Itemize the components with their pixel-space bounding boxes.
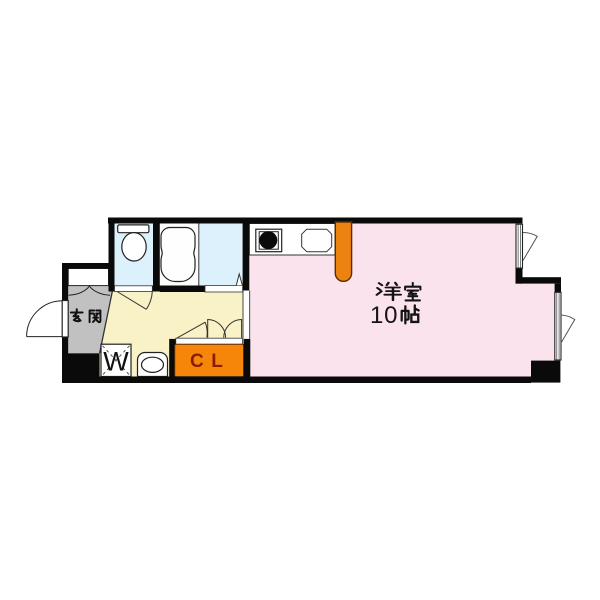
svg-text:10: 10	[370, 302, 398, 329]
svg-text:CL: CL	[190, 351, 230, 372]
svg-text:W: W	[103, 347, 129, 377]
